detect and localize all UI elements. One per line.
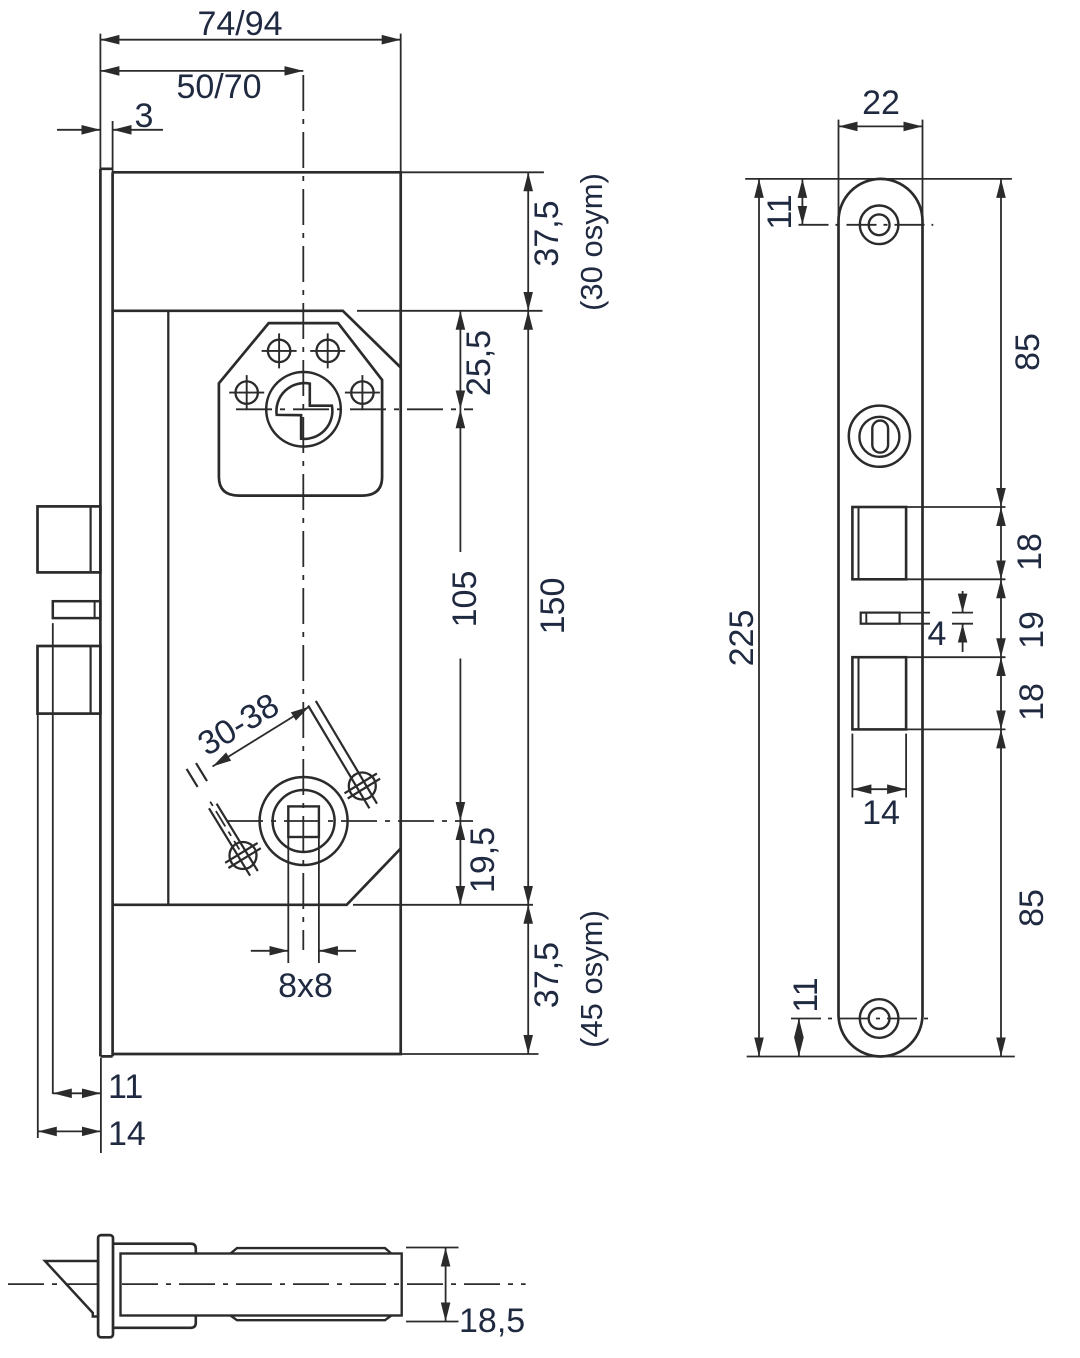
svg-text:150: 150 [534,578,572,635]
svg-text:11: 11 [787,977,825,1012]
svg-text:225: 225 [723,610,761,667]
svg-text:18: 18 [1013,683,1051,721]
svg-text:19,5: 19,5 [464,827,502,893]
svg-text:30-38: 30-38 [191,686,285,763]
svg-text:19: 19 [1013,611,1051,649]
svg-text:3: 3 [135,97,154,135]
svg-text:37,5: 37,5 [528,200,566,266]
svg-text:(30 osym): (30 osym) [574,173,609,311]
svg-text:22: 22 [862,84,900,122]
svg-text:85: 85 [1013,889,1051,927]
svg-text:105: 105 [446,571,484,628]
svg-text:11: 11 [761,194,799,229]
svg-text:18,5: 18,5 [459,1302,525,1340]
svg-text:(45 osym): (45 osym) [574,910,609,1048]
svg-text:11: 11 [108,1068,143,1106]
svg-text:8x8: 8x8 [278,967,333,1005]
svg-text:74/94: 74/94 [197,5,282,43]
svg-text:18: 18 [1011,533,1049,571]
svg-text:4: 4 [928,615,947,653]
svg-text:25,5: 25,5 [460,330,498,396]
svg-text:14: 14 [862,794,900,832]
svg-text:85: 85 [1009,333,1047,371]
svg-text:50/70: 50/70 [176,68,261,106]
svg-text:37,5: 37,5 [528,942,566,1008]
svg-text:14: 14 [108,1115,146,1153]
